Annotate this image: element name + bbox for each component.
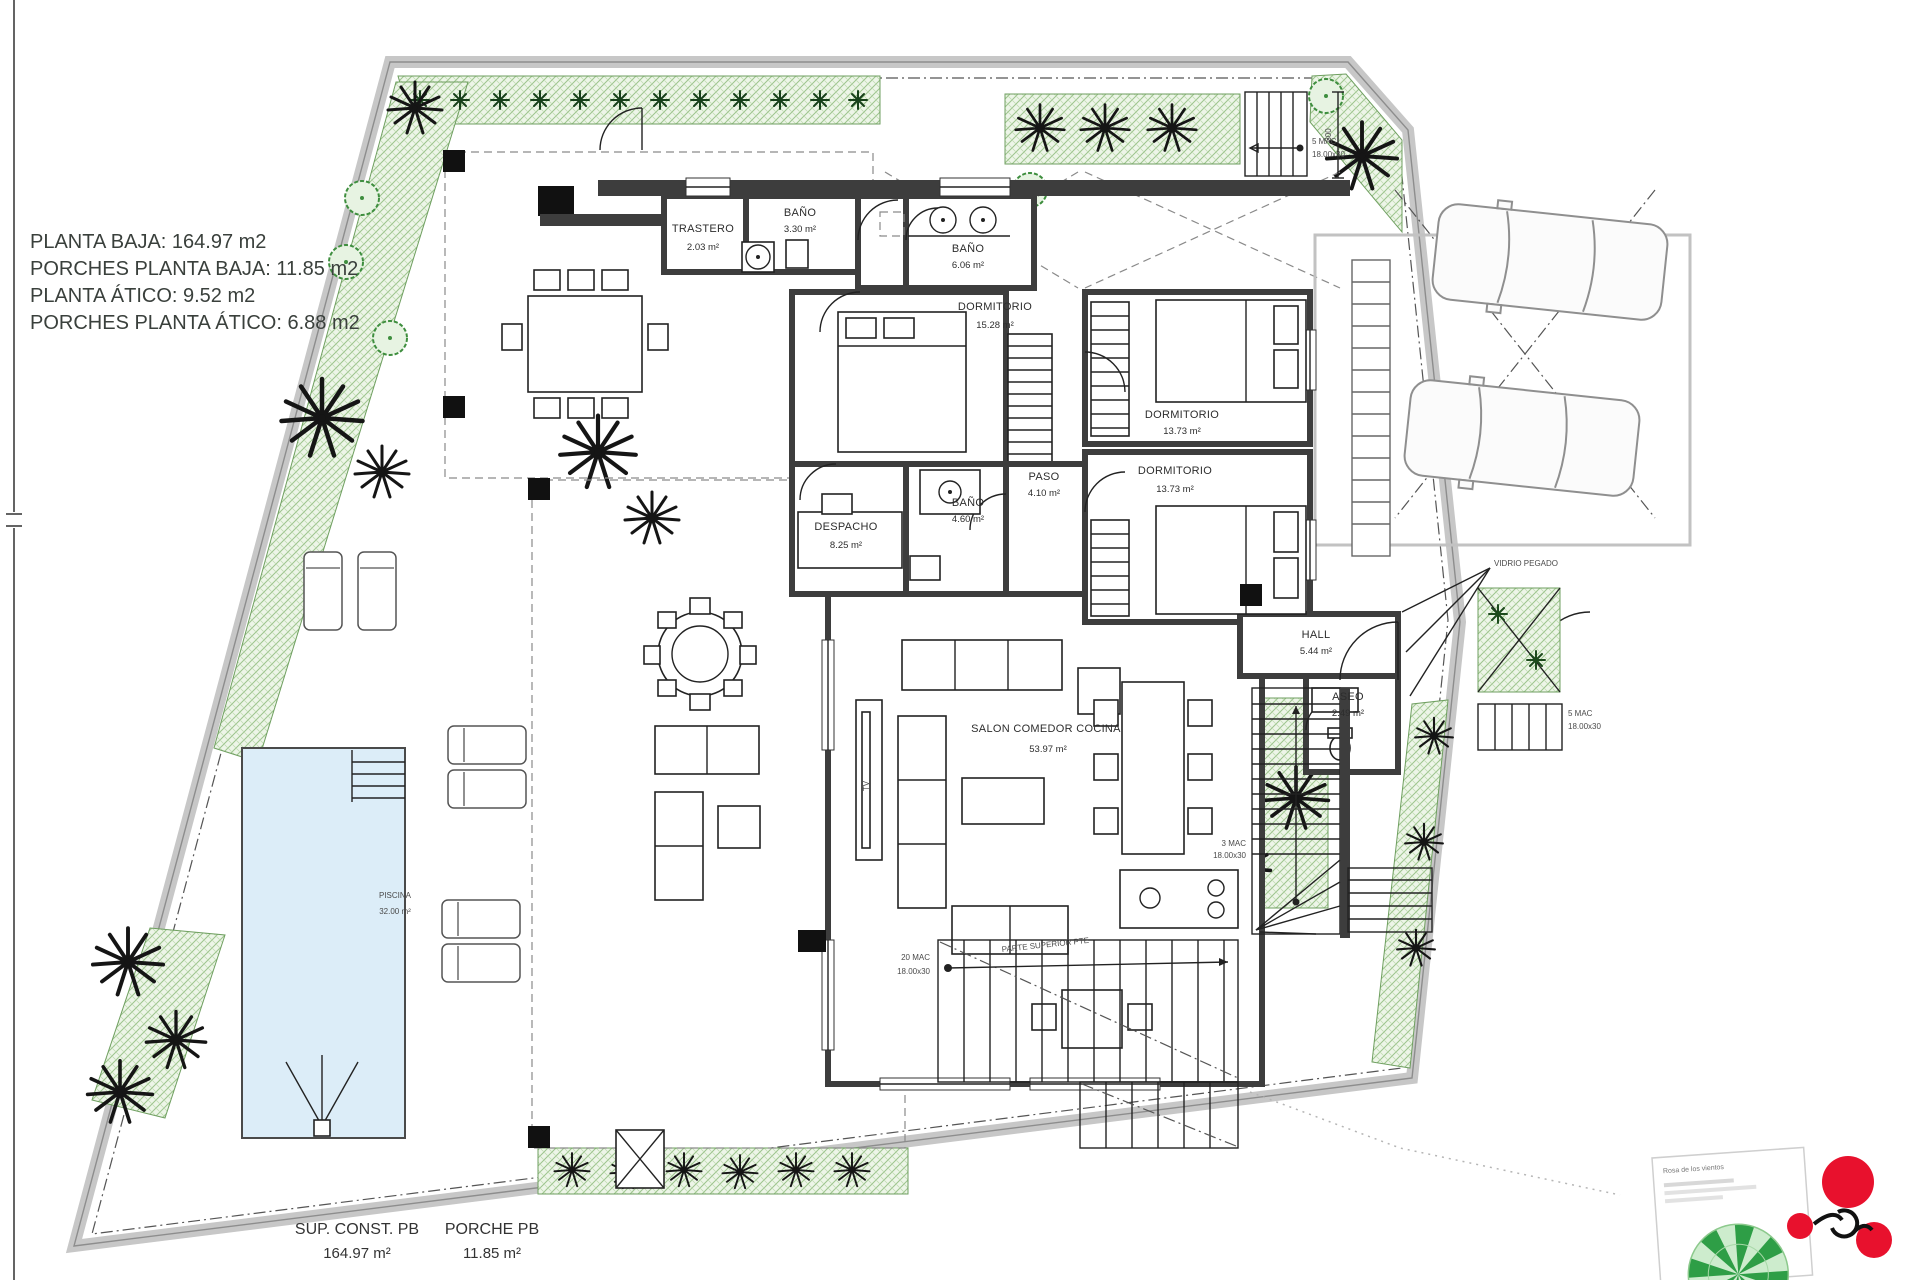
summary-line: PLANTA BAJA: 164.97 m2	[30, 231, 266, 253]
svg-text:13.73 m²: 13.73 m²	[1163, 426, 1201, 437]
closet	[1091, 520, 1129, 616]
page-border	[6, 0, 22, 1280]
dimension-label: 300	[1324, 128, 1333, 142]
svg-text:15.28 m²: 15.28 m²	[976, 320, 1014, 331]
summary-line: PORCHES PLANTA BAJA: 11.85 m2	[30, 258, 358, 280]
pergola-post-strip	[1352, 260, 1390, 556]
room-paso	[1006, 464, 1085, 594]
svg-text:ASEO: ASEO	[1332, 691, 1364, 703]
svg-text:6.06 m²: 6.06 m²	[952, 260, 984, 271]
carport	[1315, 194, 1690, 556]
svg-text:BAÑO: BAÑO	[784, 206, 817, 219]
coffee-table	[962, 778, 1044, 824]
sup-const-label: SUP. CONST. PB	[295, 1221, 419, 1238]
bed	[838, 312, 966, 452]
bed	[1156, 300, 1306, 402]
svg-text:DORMITORIO: DORMITORIO	[958, 301, 1032, 313]
area-summary: PLANTA BAJA: 164.97 m2 PORCHES PLANTA BA…	[30, 231, 360, 334]
svg-text:DORMITORIO: DORMITORIO	[1145, 409, 1219, 421]
planter-box	[616, 1130, 664, 1188]
kitchen-island	[1120, 870, 1238, 928]
pillar	[798, 930, 826, 952]
tv-cabinet: TV	[856, 700, 882, 860]
pool-label: PISCINA	[379, 891, 412, 900]
svg-text:13.73 m²: 13.73 m²	[1156, 484, 1194, 495]
svg-text:18.00x30: 18.00x30	[1312, 150, 1345, 159]
svg-text:4.10 m²: 4.10 m²	[1028, 488, 1060, 499]
totals: SUP. CONST. PB 164.97 m² PORCHE PB 11.85…	[295, 1221, 539, 1262]
porch-sofas	[655, 726, 760, 900]
pillar	[528, 1126, 550, 1148]
lounger-icon	[304, 552, 342, 630]
svg-text:2.49 m²: 2.49 m²	[1332, 708, 1364, 719]
pillar	[528, 478, 550, 500]
tree-icon	[345, 181, 379, 215]
svg-text:DESPACHO: DESPACHO	[814, 521, 877, 533]
svg-text:BAÑO: BAÑO	[952, 242, 985, 255]
svg-text:32.00 m²: 32.00 m²	[379, 907, 411, 916]
round-table	[644, 598, 756, 710]
summary-line: PORCHES PLANTA ÁTICO: 6.88 m2	[30, 311, 360, 334]
vestibule	[858, 196, 906, 288]
plant-icon	[1489, 605, 1507, 623]
pillar	[1240, 584, 1262, 606]
room-label: TRASTERO	[672, 223, 734, 235]
closet	[1008, 334, 1052, 462]
floor-plan-drawing: 5 MAC 18.00x30 300	[0, 0, 1920, 1280]
svg-text:PASO: PASO	[1029, 471, 1060, 483]
stair-note: 5 MAC	[1568, 709, 1593, 718]
svg-text:18.00x30: 18.00x30	[1568, 722, 1601, 731]
svg-text:18.00x30: 18.00x30	[1213, 851, 1246, 860]
svg-text:BAÑO: BAÑO	[952, 496, 985, 509]
closet	[1091, 302, 1129, 436]
car-icon	[1430, 194, 1670, 329]
vidrio-pegado-label: VIDRIO PEGADO	[1494, 559, 1558, 568]
svg-text:53.97 m²: 53.97 m²	[1029, 744, 1067, 755]
outdoor-dining	[502, 270, 668, 418]
bed	[1156, 506, 1306, 614]
svg-text:3.30 m²: 3.30 m²	[784, 224, 816, 235]
dining-table	[1094, 682, 1212, 854]
stair-note: 20 MAC	[901, 953, 930, 962]
pillar	[443, 396, 465, 418]
summary-line: PLANTA ÁTICO: 9.52 m2	[30, 284, 255, 307]
svg-text:SALON COMEDOR COCINA: SALON COMEDOR COCINA	[971, 723, 1121, 735]
porche-label: PORCHE PB	[445, 1221, 539, 1238]
stair-note: 3 MAC	[1222, 839, 1247, 848]
floor-plan-page: 5 MAC 18.00x30 300	[0, 0, 1920, 1280]
svg-text:8.25 m²: 8.25 m²	[830, 540, 862, 551]
room-hall	[1240, 614, 1398, 676]
pool: PISCINA 32.00 m²	[242, 748, 412, 1138]
svg-text:2.03 m²: 2.03 m²	[687, 242, 719, 253]
sup-const-value: 164.97 m²	[323, 1245, 391, 1262]
svg-text:5.44 m²: 5.44 m²	[1300, 646, 1332, 657]
pillar	[443, 150, 465, 172]
svg-text:18.00x30: 18.00x30	[897, 967, 930, 976]
svg-text:4.60 m²: 4.60 m²	[952, 514, 984, 525]
tv-label: TV	[862, 780, 871, 791]
svg-text:HALL: HALL	[1302, 629, 1331, 641]
pillar	[538, 186, 574, 216]
svg-text:DORMITORIO: DORMITORIO	[1138, 465, 1212, 477]
porche-value: 11.85 m²	[463, 1245, 521, 1262]
car-icon	[1402, 370, 1642, 505]
wind-rose-card: Rosa de los vientos	[1652, 1147, 1816, 1280]
